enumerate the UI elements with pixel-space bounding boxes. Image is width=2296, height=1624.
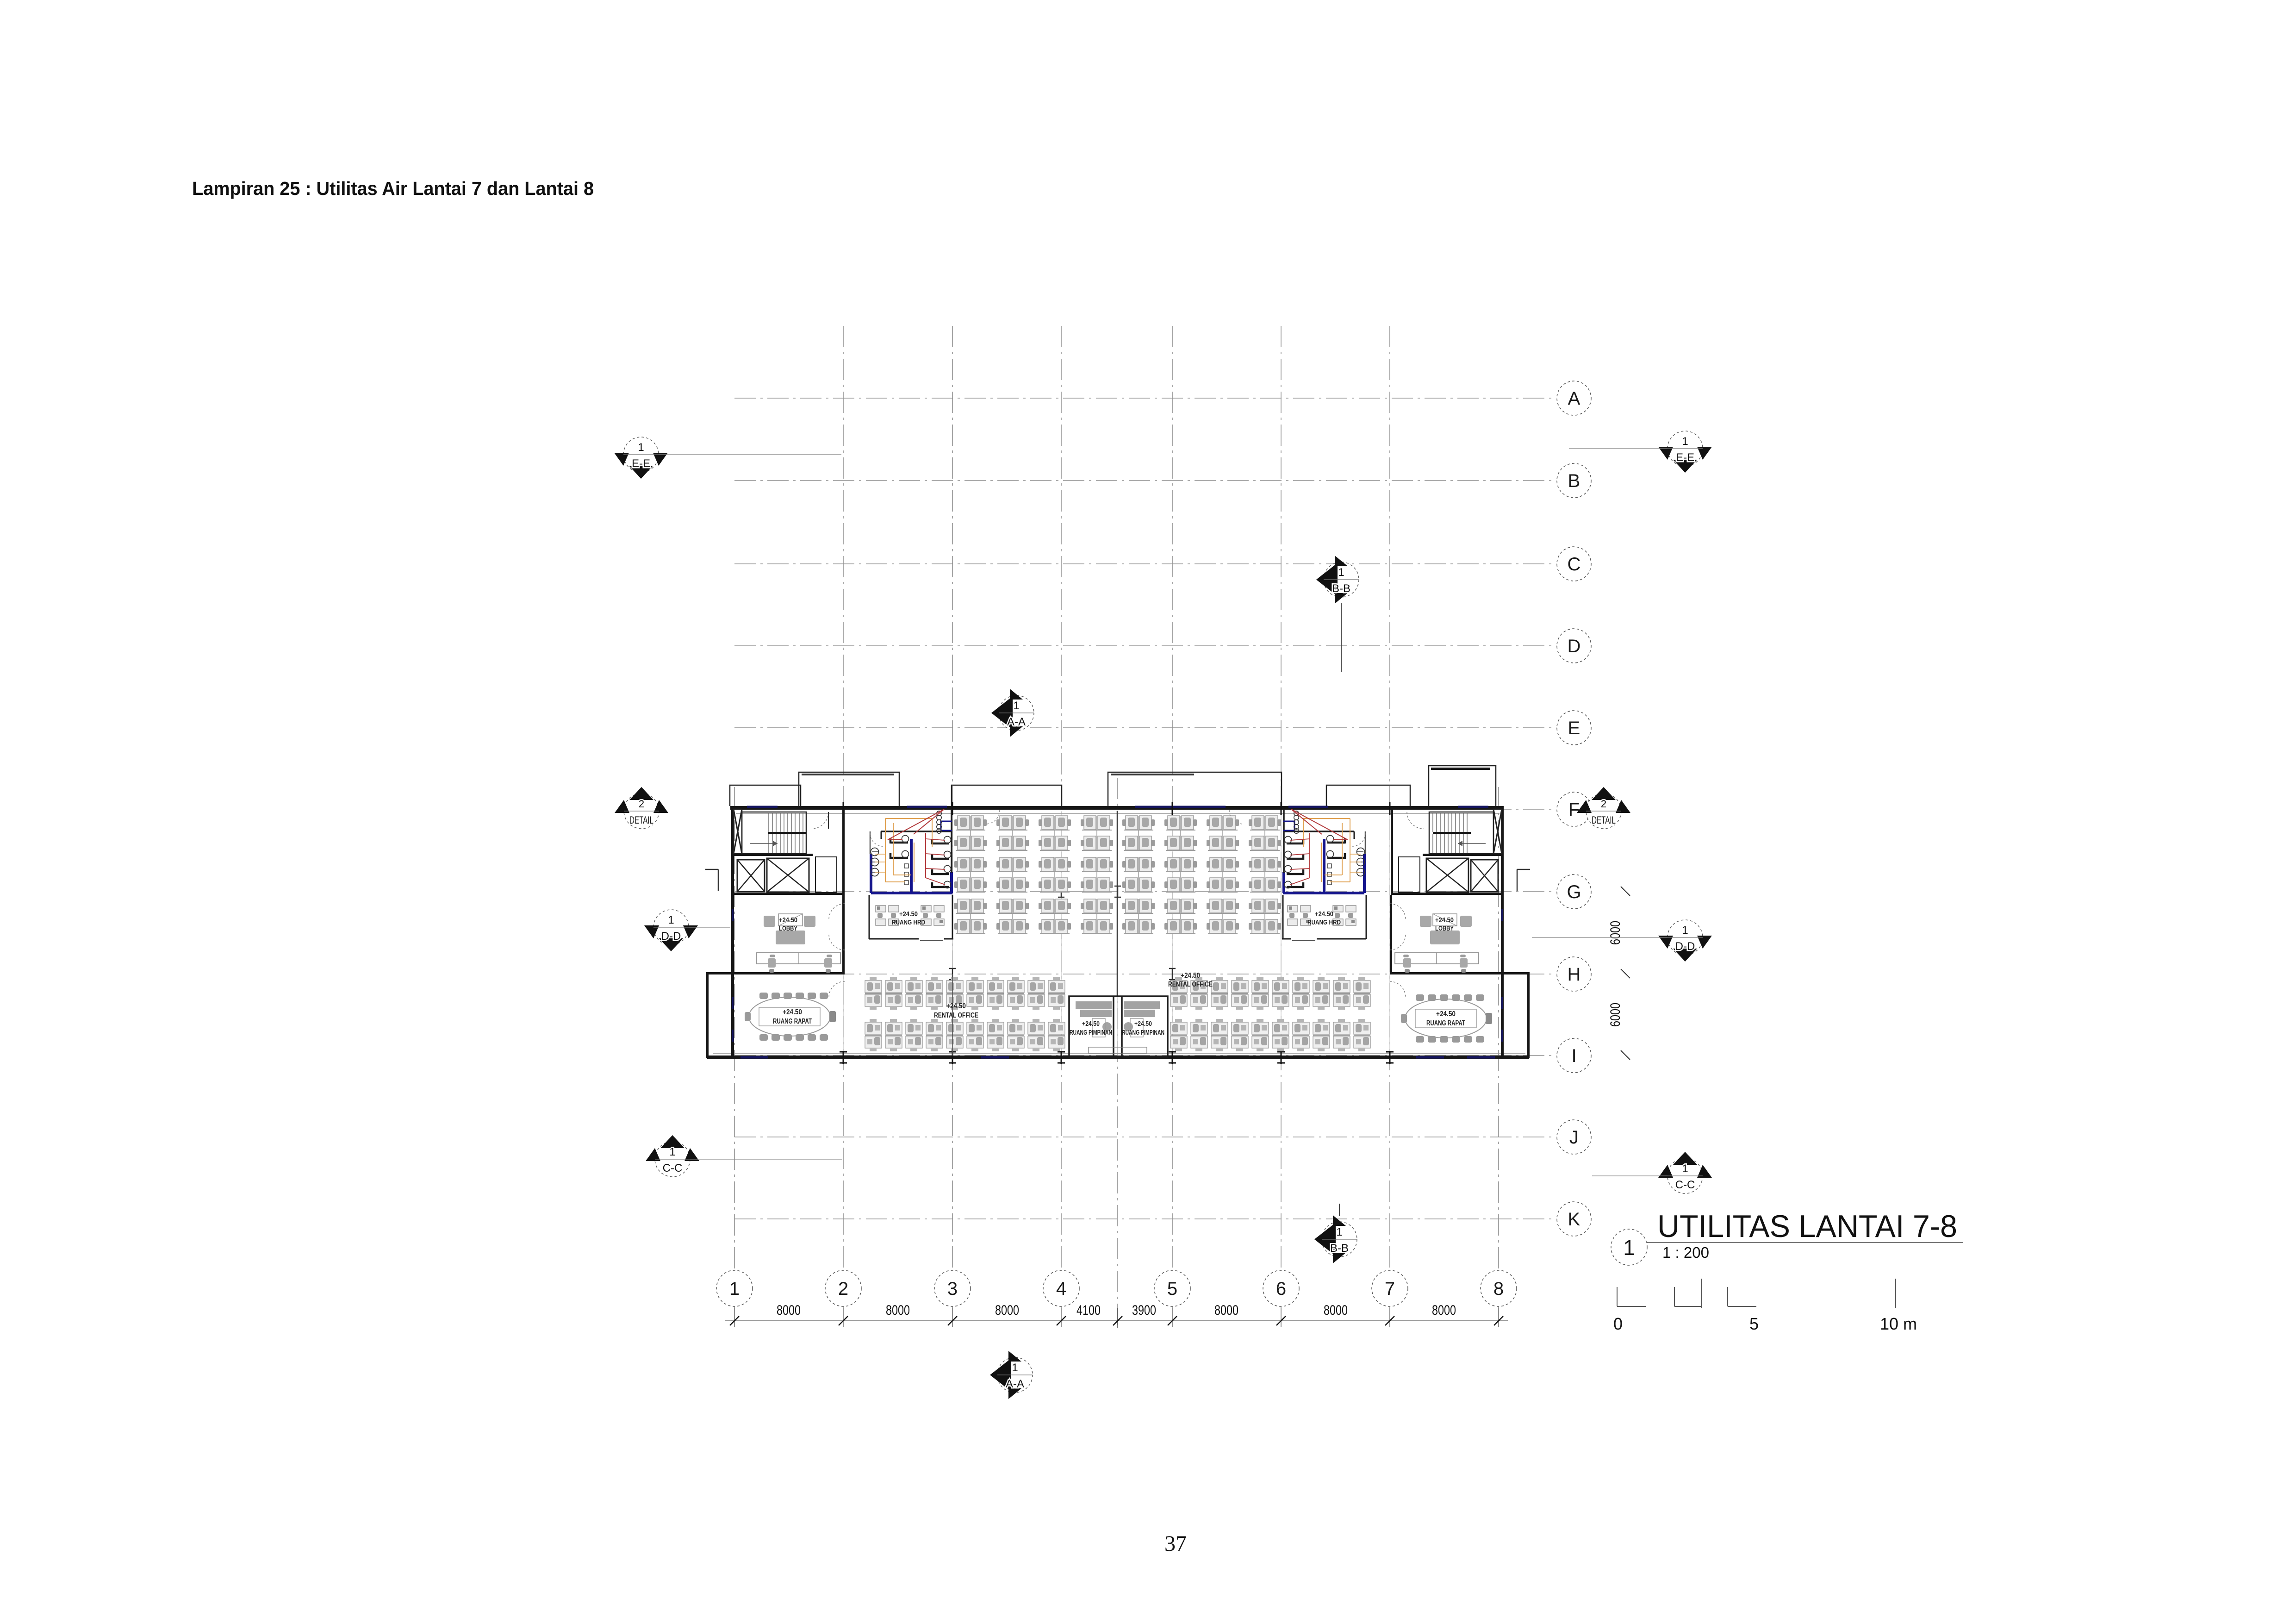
svg-text:RENTAL OFFICE: RENTAL OFFICE — [934, 1012, 978, 1019]
svg-text:1: 1 — [668, 914, 674, 926]
svg-text:1: 1 — [729, 1279, 740, 1299]
svg-text:3: 3 — [947, 1279, 958, 1299]
svg-text:2: 2 — [639, 798, 644, 810]
svg-text:6: 6 — [1276, 1279, 1286, 1299]
svg-text:RUANG HRD: RUANG HRD — [1307, 918, 1341, 926]
svg-text:+24.50: +24.50 — [899, 910, 918, 918]
svg-text:2: 2 — [838, 1279, 848, 1299]
svg-text:J: J — [1569, 1127, 1579, 1148]
svg-text:LOBBY: LOBBY — [779, 924, 797, 932]
svg-text:E-E: E-E — [1676, 451, 1694, 464]
svg-text:37: 37 — [1164, 1531, 1187, 1556]
svg-text:1: 1 — [1012, 1362, 1018, 1374]
svg-text:B-B: B-B — [1330, 1242, 1349, 1255]
svg-text:1: 1 — [1338, 566, 1344, 579]
svg-text:A-A: A-A — [1006, 1378, 1024, 1390]
svg-text:+24.50: +24.50 — [946, 1002, 966, 1010]
svg-text:F: F — [1568, 800, 1580, 820]
svg-text:+24.50: +24.50 — [783, 1008, 802, 1016]
svg-text:A-A: A-A — [1007, 716, 1026, 728]
svg-text:+24.50: +24.50 — [1134, 1020, 1152, 1028]
svg-text:B: B — [1568, 471, 1580, 491]
svg-text:8000: 8000 — [886, 1303, 910, 1318]
svg-text:I: I — [1571, 1046, 1576, 1066]
svg-text:D-D: D-D — [661, 930, 681, 943]
svg-text:8000: 8000 — [777, 1303, 801, 1318]
svg-text:1: 1 — [1682, 924, 1688, 937]
svg-text:6000: 6000 — [1608, 1003, 1623, 1027]
svg-text:+24.50: +24.50 — [1436, 1010, 1456, 1018]
svg-text:1: 1 — [1336, 1226, 1342, 1238]
svg-text:4100: 4100 — [1076, 1303, 1101, 1318]
svg-text:RUANG RAPAT: RUANG RAPAT — [773, 1018, 812, 1025]
svg-text:1: 1 — [638, 441, 644, 454]
svg-text:1: 1 — [669, 1146, 675, 1158]
svg-text:1: 1 — [1682, 1162, 1688, 1175]
svg-text:1 : 200: 1 : 200 — [1662, 1244, 1709, 1261]
svg-text:A: A — [1568, 388, 1580, 409]
svg-text:D-D: D-D — [1675, 940, 1695, 953]
svg-text:8000: 8000 — [1432, 1303, 1456, 1318]
svg-text:8: 8 — [1493, 1279, 1504, 1299]
svg-text:+24.50: +24.50 — [1082, 1020, 1100, 1028]
svg-text:E-E: E-E — [632, 457, 650, 470]
svg-text:10 m: 10 m — [1880, 1314, 1917, 1333]
svg-text:K: K — [1568, 1209, 1580, 1230]
svg-text:7: 7 — [1385, 1279, 1395, 1299]
svg-text:+24.50: +24.50 — [1181, 972, 1200, 980]
svg-text:RENTAL OFFICE: RENTAL OFFICE — [1168, 981, 1213, 988]
svg-text:8000: 8000 — [1214, 1303, 1238, 1318]
svg-text:+24.50: +24.50 — [779, 916, 797, 924]
svg-text:Lampiran 25 : Utilitas Air Lan: Lampiran 25 : Utilitas Air Lantai 7 dan … — [192, 178, 594, 199]
svg-text:+24.50: +24.50 — [1435, 916, 1454, 924]
svg-text:D: D — [1568, 636, 1581, 656]
svg-text:1: 1 — [1013, 700, 1019, 712]
svg-text:RUANG PIMPINAN: RUANG PIMPINAN — [1070, 1029, 1112, 1037]
svg-text:DETAIL: DETAIL — [1592, 814, 1616, 826]
svg-text:UTILITAS LANTAI 7-8: UTILITAS LANTAI 7-8 — [1657, 1209, 1957, 1244]
svg-text:DETAIL: DETAIL — [629, 814, 653, 826]
svg-text:8000: 8000 — [995, 1303, 1019, 1318]
svg-text:5: 5 — [1749, 1314, 1759, 1333]
svg-text:0: 0 — [1613, 1314, 1623, 1333]
svg-text:2: 2 — [1601, 798, 1606, 810]
svg-text:E: E — [1568, 718, 1580, 738]
svg-text:LOBBY: LOBBY — [1435, 924, 1454, 932]
svg-text:C-C: C-C — [663, 1162, 683, 1174]
svg-text:C-C: C-C — [1675, 1179, 1695, 1191]
svg-text:5: 5 — [1167, 1279, 1177, 1299]
svg-text:3900: 3900 — [1132, 1303, 1156, 1318]
svg-text:RUANG RAPAT: RUANG RAPAT — [1426, 1019, 1465, 1027]
svg-text:+24.50: +24.50 — [1315, 910, 1333, 918]
svg-text:1: 1 — [1623, 1236, 1635, 1260]
svg-text:C: C — [1568, 554, 1581, 575]
svg-text:RUANG PIMPINAN: RUANG PIMPINAN — [1122, 1029, 1164, 1037]
svg-text:1: 1 — [1682, 435, 1688, 448]
svg-text:RUANG HRD: RUANG HRD — [892, 918, 925, 926]
svg-text:G: G — [1567, 882, 1581, 902]
svg-text:4: 4 — [1056, 1279, 1066, 1299]
svg-text:B-B: B-B — [1332, 582, 1350, 595]
svg-text:6000: 6000 — [1608, 921, 1623, 945]
svg-text:H: H — [1568, 964, 1581, 985]
svg-text:8000: 8000 — [1324, 1303, 1348, 1318]
